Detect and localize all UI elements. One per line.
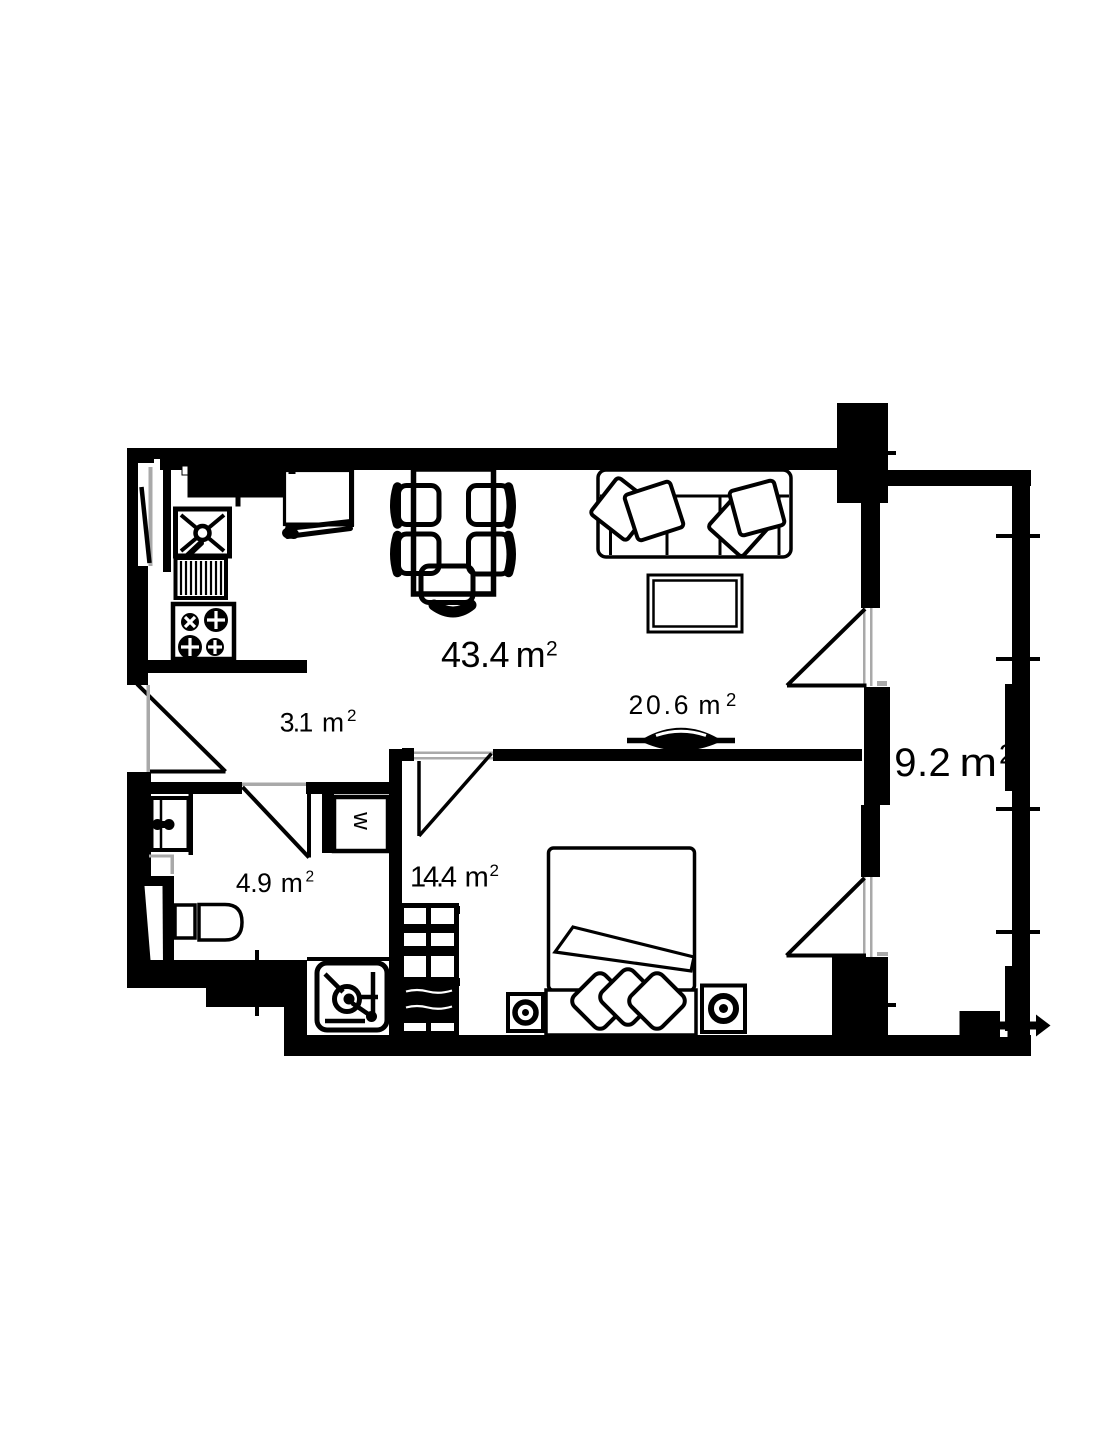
svg-text:2: 2: [546, 638, 558, 661]
svg-text:2: 2: [726, 689, 736, 710]
svg-text:m: m: [698, 690, 720, 720]
svg-text:m: m: [281, 868, 303, 898]
svg-text:2: 2: [347, 706, 356, 725]
svg-text:20.6: 20.6: [629, 690, 689, 720]
svg-text:4.9: 4.9: [236, 868, 272, 898]
svg-text:9.2: 9.2: [894, 741, 951, 785]
svg-text:2: 2: [490, 861, 499, 880]
svg-text:43.4: 43.4: [441, 634, 510, 675]
svg-text:2: 2: [999, 739, 1015, 770]
svg-text:14.4: 14.4: [410, 861, 457, 893]
svg-text:m: m: [960, 741, 998, 785]
svg-text:m: m: [516, 634, 546, 675]
svg-text:2: 2: [306, 869, 315, 886]
svg-text:3.1: 3.1: [280, 708, 314, 738]
svg-text:m: m: [465, 861, 489, 893]
svg-text:m: m: [322, 708, 344, 738]
svg-text:w: w: [348, 811, 375, 830]
